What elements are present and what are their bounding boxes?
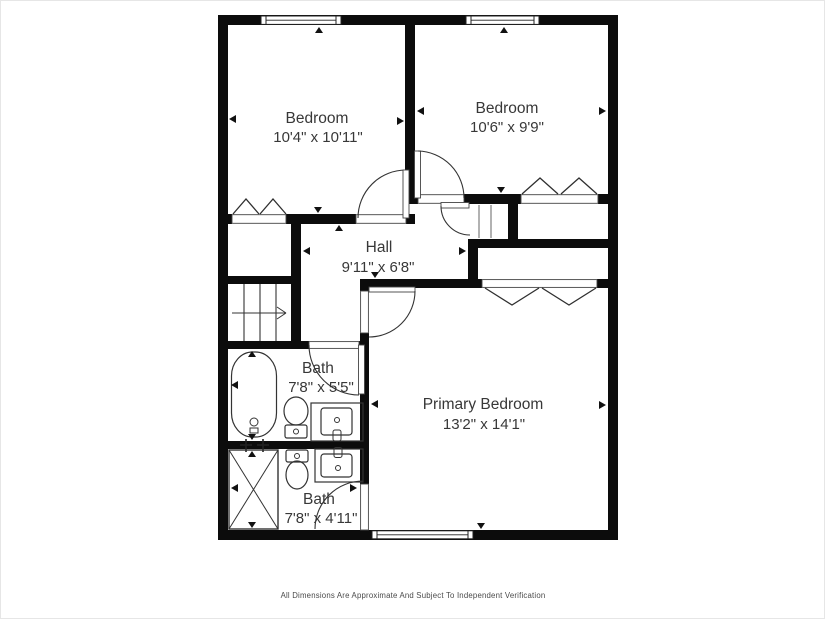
bed2-door — [415, 151, 465, 198]
dim-arrow-left — [303, 247, 310, 255]
bed2-door-opening — [418, 195, 464, 204]
dim-arrow-right — [397, 117, 404, 125]
bath2-door-opening — [361, 484, 369, 530]
wall-bed2-bottom — [598, 194, 608, 204]
bed1-door-opening — [356, 215, 406, 224]
dim-arrow-down — [314, 207, 322, 213]
room-label-primary-dims: 13'2" x 14'1" — [443, 416, 525, 433]
window-bedroom2 — [466, 16, 539, 24]
dim-arrow-right — [599, 401, 606, 409]
wall-bath1-top — [218, 341, 309, 349]
windows — [261, 16, 539, 539]
wall-hall-bottom — [597, 279, 608, 288]
dim-arrow-right — [599, 107, 606, 115]
wall-bed1-bottom — [218, 214, 232, 224]
primary-bedroom-door — [369, 287, 415, 337]
wall-bed2-bottom — [464, 194, 521, 204]
dim-arrow-left — [231, 484, 238, 492]
room-label-bath2-name: Bath — [303, 491, 335, 508]
door-swings — [309, 151, 470, 529]
toilet-icon — [286, 450, 308, 489]
primary-closet-door-icon — [542, 288, 596, 305]
dim-arrow-up — [335, 225, 343, 231]
wall-primary-left — [360, 279, 369, 291]
hall-closet-door — [441, 203, 470, 236]
room-label-bedroom2-name: Bedroom — [476, 100, 539, 117]
room-label-hall-dims: 9'11" x 6'8" — [342, 259, 415, 276]
dim-arrow-right — [459, 247, 466, 255]
outer-wall-right — [608, 15, 618, 540]
bath1-door-opening — [309, 342, 359, 349]
sink-vanity-icon — [311, 403, 363, 441]
window-bedroom1 — [261, 16, 341, 24]
toilet-icon — [284, 397, 308, 438]
closet1-track — [232, 215, 286, 224]
dim-arrow-up — [500, 27, 508, 33]
dim-arrow-down — [477, 523, 485, 529]
primary-door-opening — [361, 291, 369, 333]
wall-closet1-bottom — [218, 276, 301, 284]
room-label-bedroom1-dims: 10'4" x 10'11" — [273, 129, 363, 146]
dim-arrow-left — [371, 400, 378, 408]
dim-arrow-down — [248, 522, 256, 528]
bed2-closet-track — [521, 195, 598, 204]
primary-closet-door-icon — [485, 288, 539, 305]
room-label-primary-name: Primary Bedroom — [423, 396, 544, 413]
bed1-door — [358, 170, 409, 218]
floor-plan-page: Bedroom 10'4" x 10'11" Bedroom 10'6" x 9… — [0, 0, 825, 619]
primary-closet-track — [482, 280, 597, 288]
room-label-hall-name: Hall — [366, 239, 393, 256]
dim-arrow-left — [417, 107, 424, 115]
bed2-closet-door-icon — [561, 178, 597, 194]
room-label-bedroom2-dims: 10'6" x 9'9" — [470, 119, 544, 136]
hall-closet-shelves — [479, 205, 491, 238]
dim-arrow-up — [315, 27, 323, 33]
dim-arrow-left — [229, 115, 236, 123]
bed2-closet-door-icon — [522, 178, 558, 194]
room-label-bath1-dims: 7'8" x 5'5" — [288, 379, 354, 396]
bed1-closet-door-icon — [233, 199, 259, 214]
room-label-bedroom1-name: Bedroom — [286, 110, 349, 127]
room-label-bath1-name: Bath — [302, 360, 334, 377]
room-label-bath2-dims: 7'8" x 4'11" — [285, 510, 358, 527]
bed1-closet-door-icon — [260, 199, 286, 214]
dim-arrow-down — [497, 187, 505, 193]
floor-plan-drawing: Bedroom 10'4" x 10'11" Bedroom 10'6" x 9… — [1, 1, 824, 618]
stairs — [232, 284, 286, 341]
dim-arrow-up — [248, 451, 256, 457]
wall-closet-middle — [468, 239, 608, 248]
disclaimer-text: All Dimensions Are Approximate And Subje… — [281, 591, 546, 600]
dim-arrow-right — [350, 484, 357, 492]
stairs-direction-arrow — [232, 307, 286, 319]
sink-vanity-icon — [315, 448, 363, 483]
window-primary-bedroom — [372, 531, 473, 539]
